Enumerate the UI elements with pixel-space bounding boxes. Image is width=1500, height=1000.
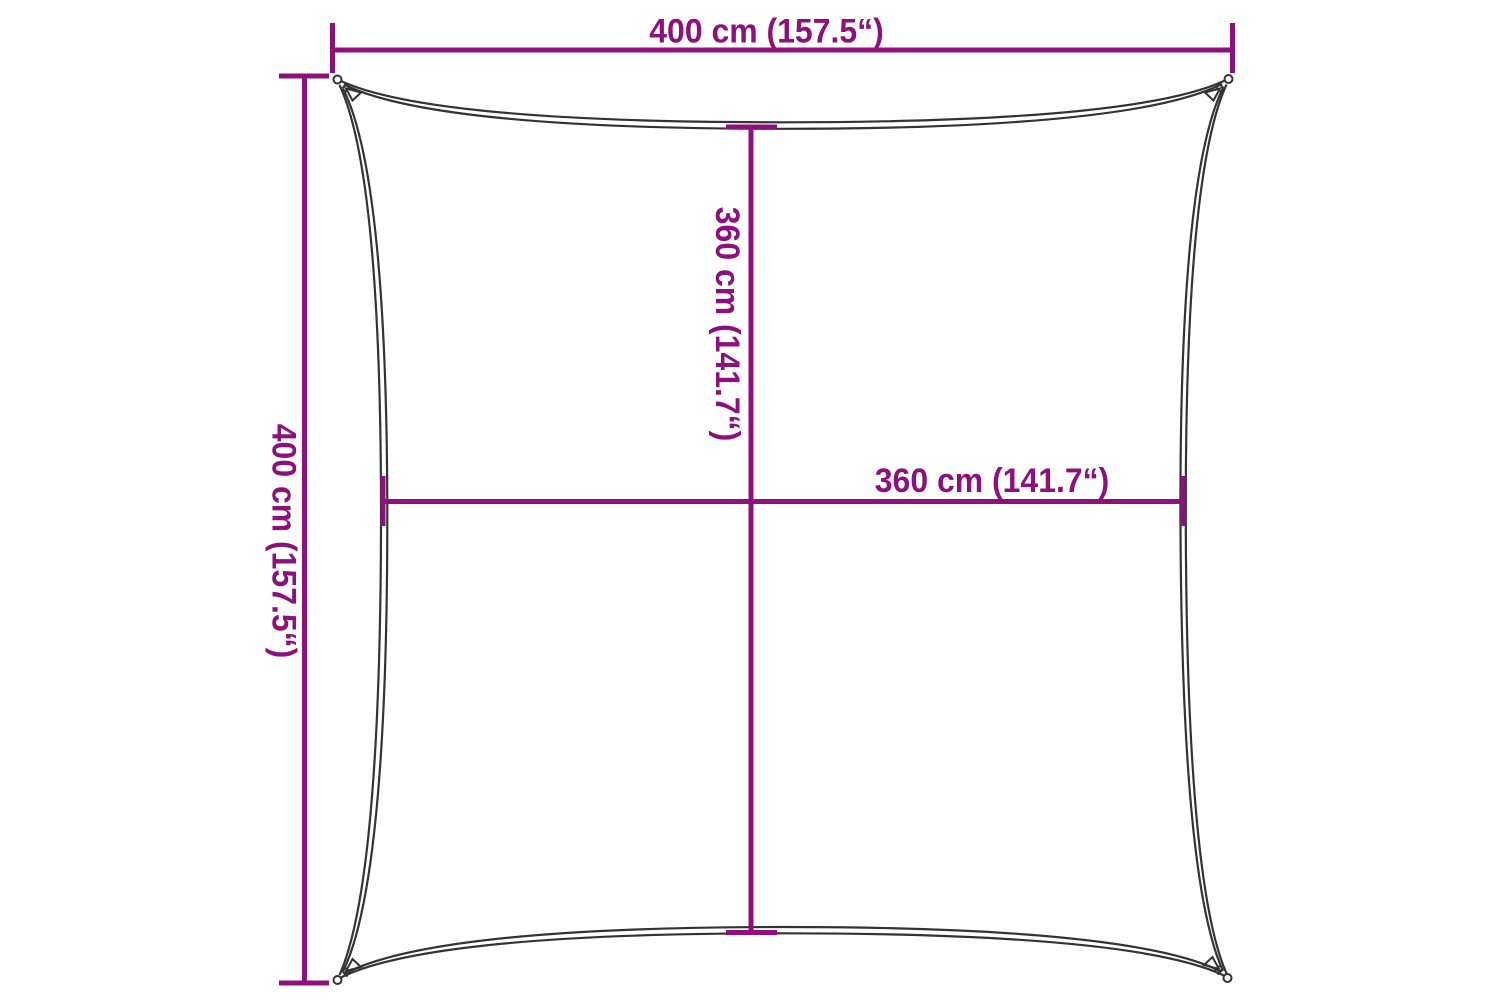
svg-text:360 cm (141.7“): 360 cm (141.7“) xyxy=(709,207,747,441)
svg-text:400 cm (157.5“): 400 cm (157.5“) xyxy=(649,11,883,49)
svg-text:360 cm (141.7“): 360 cm (141.7“) xyxy=(875,461,1109,499)
svg-text:400 cm (157.5“): 400 cm (157.5“) xyxy=(265,424,303,658)
